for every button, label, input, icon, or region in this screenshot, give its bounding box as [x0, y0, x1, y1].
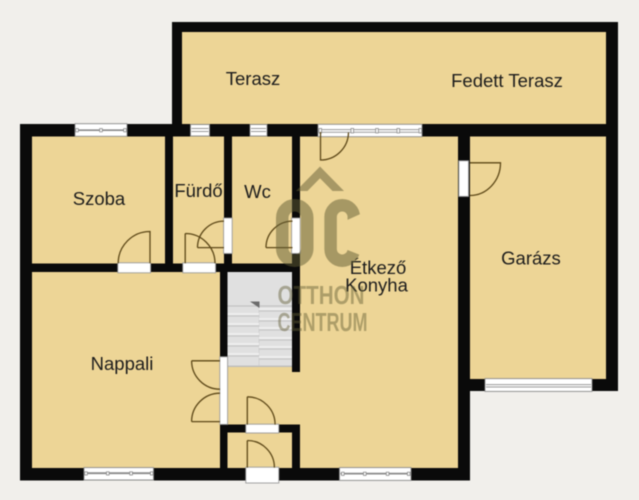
- svg-text:Garázs: Garázs: [501, 248, 561, 269]
- svg-text:OTTHON: OTTHON: [278, 280, 365, 310]
- svg-text:CENTRUM: CENTRUM: [278, 307, 368, 337]
- svg-text:Fedett Terasz: Fedett Terasz: [451, 70, 563, 91]
- svg-text:Terasz: Terasz: [226, 68, 281, 89]
- svg-text:Fürdő: Fürdő: [174, 180, 222, 201]
- svg-text:Szoba: Szoba: [73, 188, 126, 209]
- svg-text:Nappali: Nappali: [91, 353, 154, 374]
- svg-text:Wc: Wc: [244, 181, 271, 202]
